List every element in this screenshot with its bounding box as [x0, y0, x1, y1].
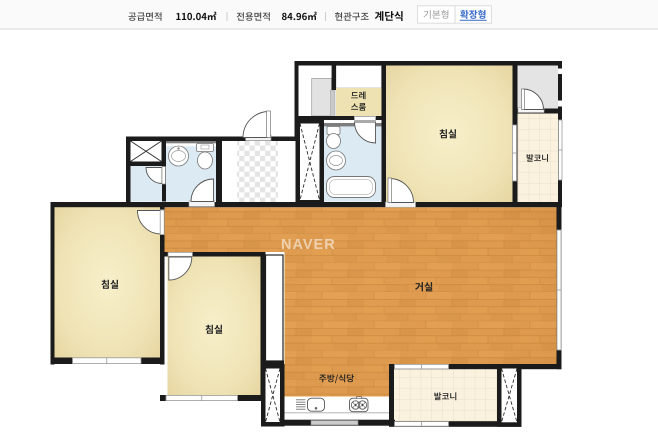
svg-text:NAVER: NAVER	[281, 237, 336, 253]
